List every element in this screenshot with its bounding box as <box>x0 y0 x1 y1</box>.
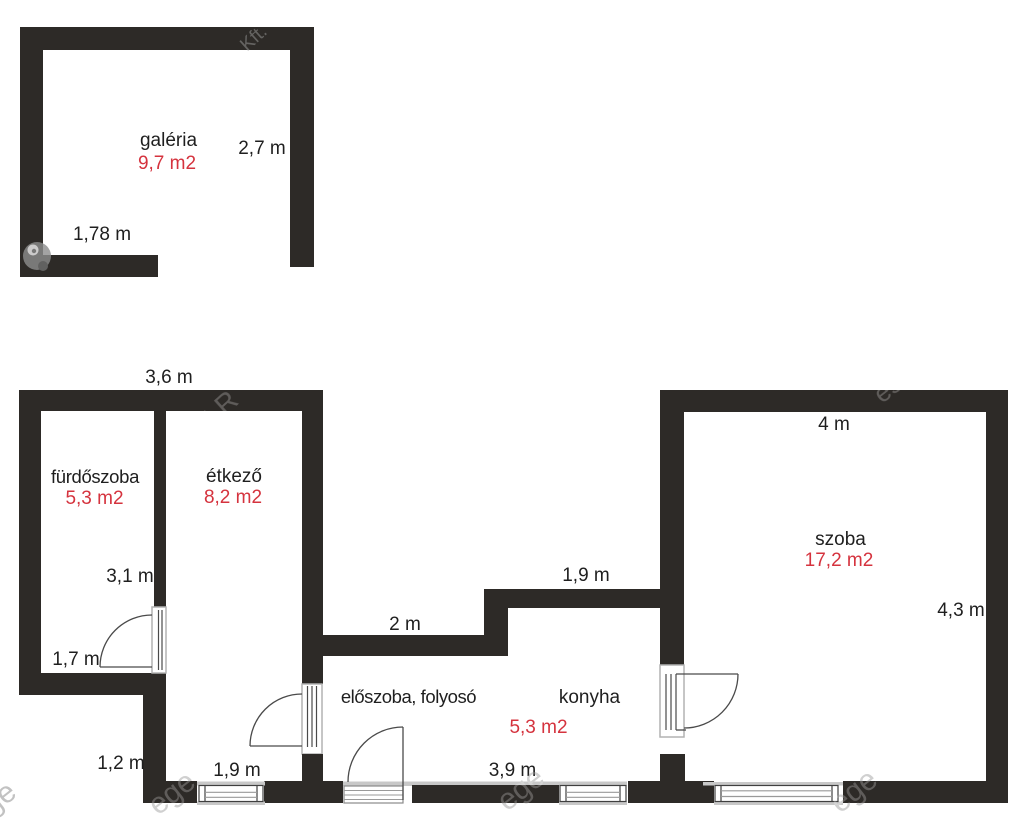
svg-text:1,7 m: 1,7 m <box>52 649 100 670</box>
svg-text:8,2 m2: 8,2 m2 <box>204 487 262 508</box>
svg-text:előszoba, folyosó: előszoba, folyosó <box>341 686 476 707</box>
svg-text:4,3 m: 4,3 m <box>937 600 985 621</box>
svg-text:fürdőszoba: fürdőszoba <box>51 466 140 487</box>
svg-text:galéria: galéria <box>140 130 197 151</box>
svg-text:1,9 m: 1,9 m <box>213 760 261 781</box>
svg-text:1,78 m: 1,78 m <box>73 224 131 245</box>
svg-text:konyha: konyha <box>559 687 621 708</box>
svg-text:5,3 m2: 5,3 m2 <box>509 717 567 738</box>
svg-text:9,7 m2: 9,7 m2 <box>138 153 196 174</box>
svg-text:étkező: étkező <box>206 466 262 487</box>
svg-text:3,1 m: 3,1 m <box>106 566 154 587</box>
svg-text:2 m: 2 m <box>389 614 421 635</box>
svg-text:2,7 m: 2,7 m <box>238 138 286 159</box>
svg-text:17,2 m2: 17,2 m2 <box>805 550 874 571</box>
svg-text:5,3 m2: 5,3 m2 <box>65 488 123 509</box>
svg-text:1,9 m: 1,9 m <box>562 565 610 586</box>
svg-text:3,6 m: 3,6 m <box>145 367 193 388</box>
svg-text:szoba: szoba <box>815 529 866 550</box>
svg-text:4 m: 4 m <box>818 414 850 435</box>
svg-text:1,2 m: 1,2 m <box>97 753 145 774</box>
